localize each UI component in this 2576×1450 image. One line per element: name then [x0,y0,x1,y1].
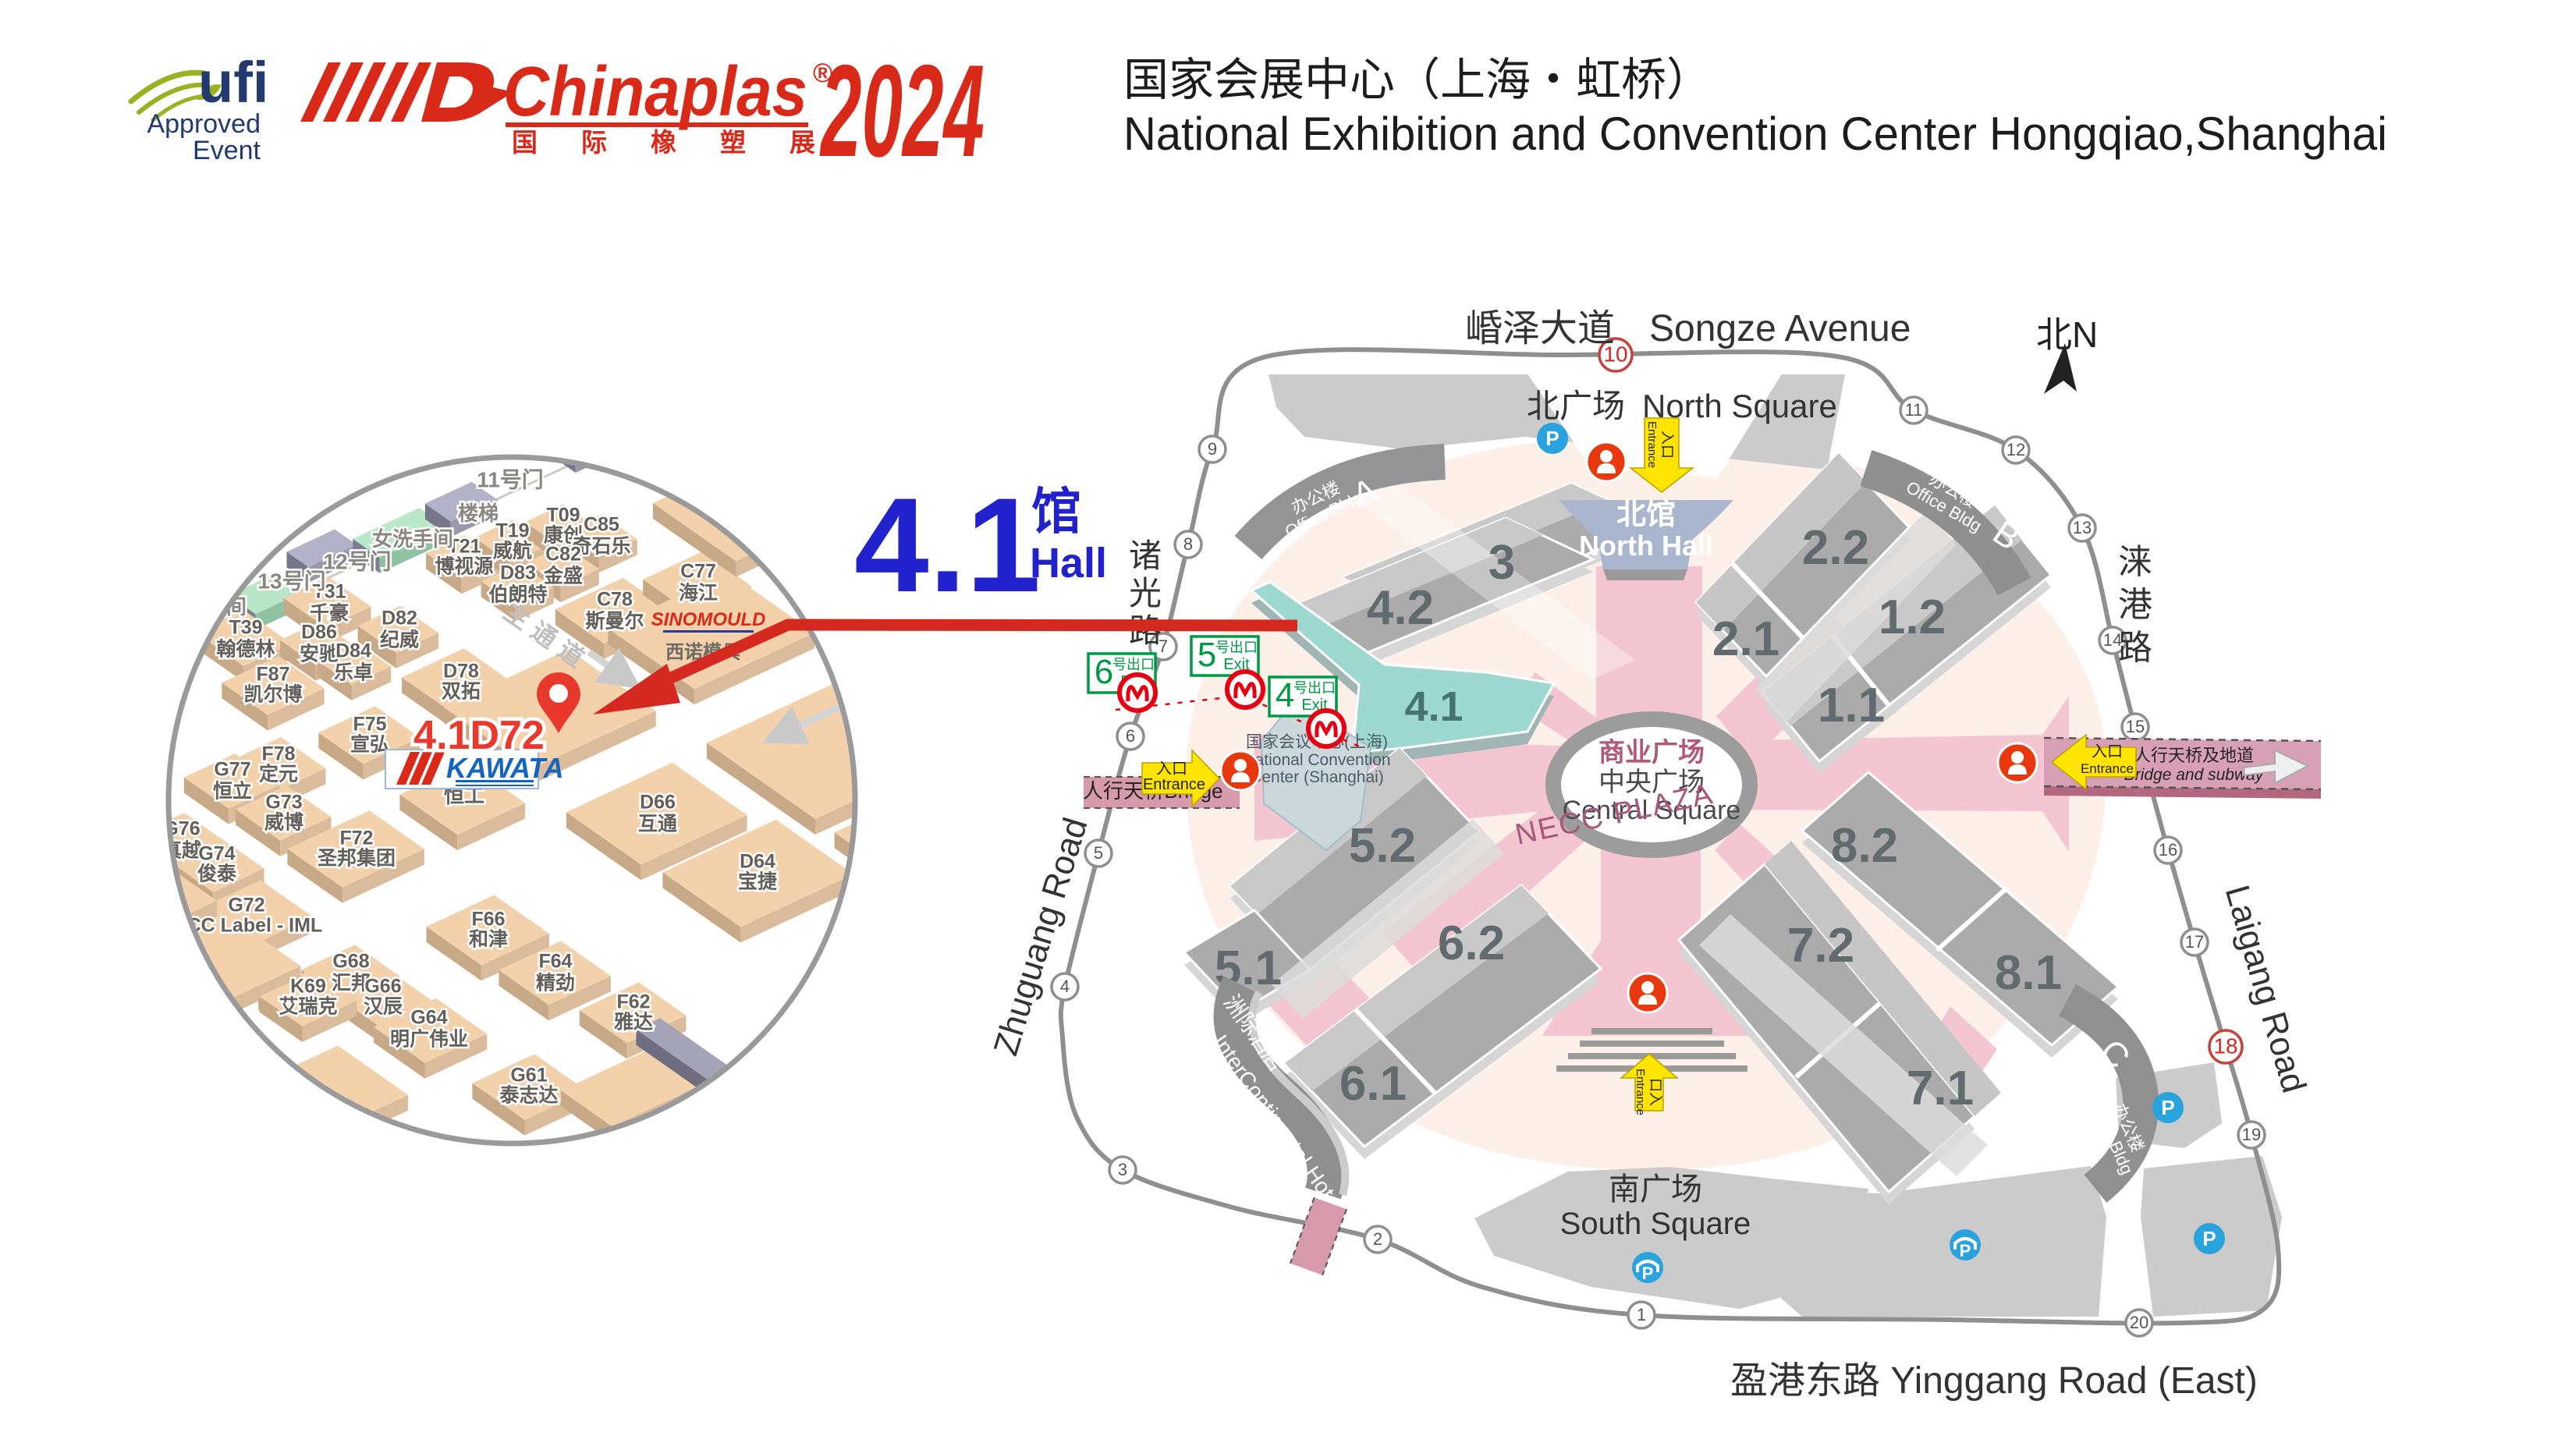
svg-text:SINOMOULD: SINOMOULD [651,609,766,630]
svg-text:3: 3 [1488,536,1515,590]
svg-text:1.1: 1.1 [1818,679,1885,732]
svg-text:F64: F64 [538,951,572,973]
svg-text:1: 1 [1637,1305,1646,1324]
svg-text:海江: 海江 [679,582,718,604]
svg-text:D66: D66 [640,792,676,814]
svg-text:P: P [1545,427,1559,450]
svg-text:乐卓: 乐卓 [334,662,373,684]
svg-text:G66: G66 [364,976,401,998]
svg-text:翰德林: 翰德林 [216,638,275,661]
svg-text:Hall: Hall [1030,540,1107,587]
svg-text:6.2: 6.2 [1438,916,1505,970]
svg-text:P: P [1642,1264,1654,1283]
svg-text:北N: 北N [2036,314,2098,355]
svg-text:商业广场: 商业广场 [1598,738,1705,768]
svg-text:6: 6 [1126,726,1135,746]
svg-text:路: 路 [2118,629,2152,667]
svg-text:女洗手间: 女洗手间 [372,527,453,551]
svg-text:互通: 互通 [638,814,677,835]
svg-text:P: P [2202,1227,2216,1250]
svg-text:金盛: 金盛 [543,565,583,587]
svg-text:定元: 定元 [259,763,298,785]
svg-text:楼梯: 楼梯 [458,502,499,525]
svg-text:号出口: 号出口 [1112,657,1155,672]
svg-text:20: 20 [2130,1313,2148,1332]
svg-text:艾瑞克: 艾瑞克 [279,996,337,1018]
svg-text:6: 6 [1095,653,1113,691]
svg-text:港: 港 [2118,586,2152,624]
svg-text:国家会展中心（上海・虹桥）: 国家会展中心（上海・虹桥） [1123,55,1712,105]
svg-text:P: P [1960,1241,1971,1260]
svg-text:17: 17 [2185,932,2204,952]
svg-text:13: 13 [2073,518,2092,537]
svg-text:Approved: Approved [147,109,261,139]
svg-text:国际橡塑展: 国际橡塑展 [512,128,859,157]
svg-text:D86: D86 [301,622,337,643]
svg-text:2024: 2024 [819,37,985,184]
svg-text:北馆: 北馆 [1616,498,1676,531]
svg-text:光: 光 [1129,575,1162,612]
svg-text:8.2: 8.2 [1831,819,1898,873]
svg-text:18: 18 [2213,1033,2237,1058]
svg-text:G64: G64 [410,1007,447,1029]
svg-text:D84: D84 [335,640,371,662]
svg-text:雅达: 雅达 [614,1012,653,1033]
svg-text:汉辰: 汉辰 [364,996,403,1018]
svg-text:纪威: 纪威 [380,629,419,651]
svg-text:F87: F87 [256,664,289,686]
svg-text:7.1: 7.1 [1907,1062,1974,1115]
svg-text:泰志达: 泰志达 [499,1085,558,1107]
svg-text:G77: G77 [214,759,250,781]
svg-text:8: 8 [1183,534,1193,554]
svg-text:6.1: 6.1 [1339,1057,1407,1111]
svg-text:G61: G61 [510,1065,547,1087]
svg-text:D82: D82 [381,608,417,629]
svg-text:16: 16 [2159,840,2177,860]
svg-text:G73: G73 [265,792,302,814]
svg-text:入口: 入口 [1659,431,1675,459]
svg-text:圣邦集团: 圣邦集团 [318,847,396,870]
svg-text:明广伟业: 明广伟业 [390,1028,468,1051]
svg-text:和津: 和津 [469,929,508,951]
svg-text:Entrance: Entrance [2081,761,2134,776]
svg-text:宣弘: 宣弘 [350,733,389,756]
svg-text:5: 5 [1198,636,1216,674]
svg-text:P: P [2161,1096,2174,1119]
svg-text:D83: D83 [500,562,536,584]
svg-text:11: 11 [1905,400,1923,420]
svg-text:入口: 入口 [2092,743,2123,760]
svg-text:博视源: 博视源 [435,556,493,578]
svg-text:G74: G74 [198,843,235,865]
svg-text:盈港东路 Yinggang Road (East): 盈港东路 Yinggang Road (East) [1730,1360,2258,1402]
svg-text:19: 19 [2242,1125,2261,1144]
svg-text:2: 2 [1373,1229,1382,1249]
svg-text:南广场: 南广场 [1609,1172,1702,1207]
svg-text:双拓: 双拓 [442,681,481,703]
svg-text:South Square: South Square [1560,1207,1751,1241]
svg-text:4.1: 4.1 [1404,683,1463,730]
svg-text:C77: C77 [680,561,716,583]
svg-text:3: 3 [1118,1160,1127,1179]
svg-text:馆: 馆 [1031,484,1081,540]
svg-text:C82: C82 [545,544,581,565]
svg-text:D78: D78 [443,661,479,682]
svg-text:9: 9 [1208,439,1217,459]
svg-text:精劲: 精劲 [536,973,575,994]
svg-text:G72: G72 [228,895,264,916]
svg-text:口入: 口入 [1648,1078,1663,1106]
svg-text:4: 4 [1060,977,1070,996]
svg-text:北广场: 北广场 [1527,388,1625,424]
svg-text:恒立: 恒立 [213,780,252,803]
svg-text:F72: F72 [339,828,373,849]
svg-text:人行天桥及地道: 人行天桥及地道 [2134,746,2254,765]
svg-text:4.1D72: 4.1D72 [413,713,545,758]
svg-text:15: 15 [2126,717,2145,736]
svg-text:涞: 涞 [2118,543,2152,581]
svg-text:F66: F66 [471,909,505,931]
svg-text:斯曼尔: 斯曼尔 [585,610,644,633]
svg-text:威航: 威航 [493,540,532,562]
svg-text:C85: C85 [584,514,619,536]
svg-text:Songze Avenue: Songze Avenue [1649,308,1911,349]
svg-text:Entrance: Entrance [1143,776,1205,793]
svg-text:7.2: 7.2 [1787,919,1854,973]
svg-text:号出口: 号出口 [1215,640,1258,655]
svg-text:崏泽大道: 崏泽大道 [1465,308,1615,349]
svg-text:Entrance: Entrance [1634,1069,1647,1115]
svg-text:G68: G68 [332,951,369,973]
svg-text:号出口: 号出口 [1293,680,1336,696]
svg-text:宝捷: 宝捷 [738,870,777,893]
svg-text:F75: F75 [353,714,386,736]
svg-text:Chinaplas: Chinaplas [503,53,807,131]
svg-text:1.2: 1.2 [1879,590,1946,644]
svg-text:National Convention: National Convention [1243,751,1390,769]
svg-text:凯尔博: 凯尔博 [243,683,302,706]
svg-text:12: 12 [2007,440,2025,459]
svg-text:D64: D64 [740,851,775,873]
svg-text:8.1: 8.1 [1995,946,2062,1000]
svg-text:11号门: 11号门 [477,467,544,491]
svg-text:C78: C78 [597,589,633,611]
svg-text:Center (Shanghai): Center (Shanghai) [1250,768,1384,786]
svg-text:4: 4 [1276,676,1294,714]
svg-text:13号门: 13号门 [257,569,325,593]
svg-text:诸: 诸 [1129,537,1162,574]
svg-text:T09: T09 [546,505,580,526]
svg-text:Entrance: Entrance [1645,421,1659,468]
svg-text:K69: K69 [290,976,326,998]
svg-text:12号门: 12号门 [323,549,391,573]
svg-text:安驰: 安驰 [300,643,339,665]
svg-text:F78: F78 [261,743,295,765]
svg-text:入口: 入口 [1156,760,1187,778]
svg-text:5.2: 5.2 [1349,819,1416,873]
svg-text:ufi: ufi [198,50,268,115]
svg-text:2.1: 2.1 [1712,612,1779,666]
svg-text:4.2: 4.2 [1367,581,1434,635]
svg-text:North Hall: North Hall [1579,530,1713,562]
svg-text:4.1: 4.1 [854,470,1041,620]
svg-text:Event: Event [193,136,261,165]
svg-text:National Exhibition and Conven: National Exhibition and Convention Cente… [1123,108,2387,160]
svg-text:T19: T19 [495,520,529,542]
svg-text:俊泰: 俊泰 [197,863,237,885]
svg-text:5: 5 [1094,843,1103,863]
svg-text:2.2: 2.2 [1802,521,1869,575]
svg-text:威博: 威博 [264,811,303,834]
svg-text:F62: F62 [616,991,650,1013]
svg-text:T39: T39 [229,617,262,639]
